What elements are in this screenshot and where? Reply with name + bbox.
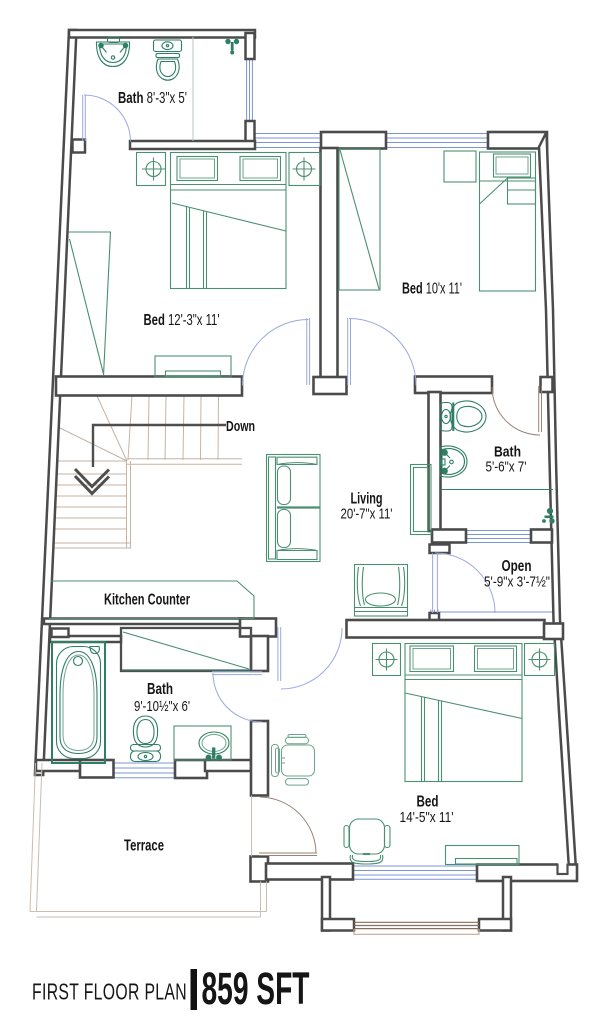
svg-text:Kitchen Counter: Kitchen Counter — [104, 592, 190, 609]
svg-text:20'-7"x 11': 20'-7"x 11' — [341, 506, 393, 523]
svg-text:Bath 8'-3"x 5': Bath 8'-3"x 5' — [118, 90, 187, 107]
svg-text:9'-10½"x 6': 9'-10½"x 6' — [134, 698, 190, 715]
svg-text:Down: Down — [226, 418, 255, 435]
svg-text:859 SFT: 859 SFT — [202, 963, 310, 1014]
svg-text:FIRST FLOOR PLAN: FIRST FLOOR PLAN — [32, 979, 187, 1005]
svg-text:Open: Open — [502, 558, 532, 575]
svg-text:5'-9"x 3'-7½": 5'-9"x 3'-7½" — [484, 574, 550, 591]
svg-text:5'-6"x 7': 5'-6"x 7' — [486, 459, 527, 476]
svg-text:Bed 10'x 11': Bed 10'x 11' — [402, 281, 462, 298]
svg-text:14'-5"x 11': 14'-5"x 11' — [400, 809, 454, 826]
svg-text:Bed 12'-3"x 11': Bed 12'-3"x 11' — [144, 312, 220, 329]
svg-text:Bed: Bed — [417, 794, 439, 811]
svg-text:Terrace: Terrace — [124, 838, 164, 855]
svg-text:Bath: Bath — [147, 681, 173, 698]
